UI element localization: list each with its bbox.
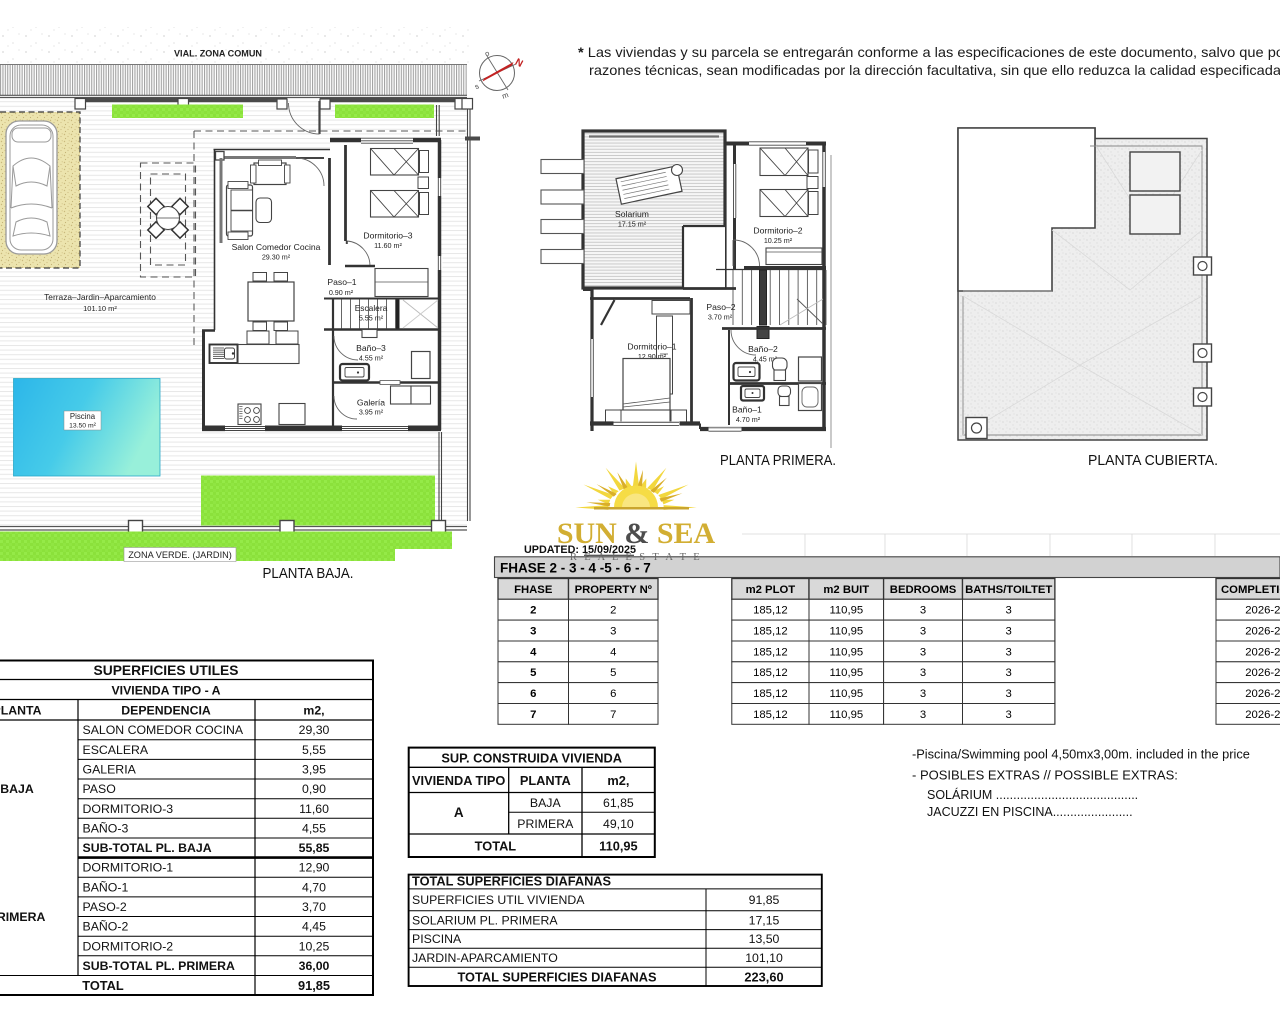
svg-text:BAJA: BAJA xyxy=(530,796,562,810)
svg-text:PASO: PASO xyxy=(83,782,116,796)
svg-text:61,85: 61,85 xyxy=(603,796,634,810)
svg-text:4,70: 4,70 xyxy=(302,880,326,894)
svg-text:SUPERFICIES UTILES: SUPERFICIES UTILES xyxy=(94,663,239,678)
svg-text:FHASE: FHASE xyxy=(514,584,553,596)
svg-text:2026-27: 2026-27 xyxy=(1245,626,1280,638)
svg-text:185,12: 185,12 xyxy=(753,667,788,679)
svg-text:3: 3 xyxy=(1006,646,1012,658)
svg-text:VIVIENDA TIPO: VIVIENDA TIPO xyxy=(412,773,505,788)
svg-text:49,10: 49,10 xyxy=(603,817,634,831)
svg-text:SUB-TOTAL PL. BAJA: SUB-TOTAL PL. BAJA xyxy=(83,841,212,855)
svg-text:4.70 m²: 4.70 m² xyxy=(736,415,761,424)
svg-text:m2 PLOT: m2 PLOT xyxy=(746,584,796,596)
svg-text:Piscina: Piscina xyxy=(70,412,96,421)
svg-text:COMPLETION: COMPLETION xyxy=(1221,584,1280,596)
svg-text:12,90: 12,90 xyxy=(299,861,330,875)
svg-text:PLANTA: PLANTA xyxy=(520,773,571,788)
svg-text:A: A xyxy=(454,805,464,820)
svg-text:3: 3 xyxy=(530,626,536,638)
svg-text:185,12: 185,12 xyxy=(753,688,788,700)
svg-text:PRIMERA: PRIMERA xyxy=(0,910,45,924)
svg-text:Dormitorio–2: Dormitorio–2 xyxy=(753,226,802,236)
svg-text:5.55 m²: 5.55 m² xyxy=(359,314,384,323)
svg-text:Dormitorio–1: Dormitorio–1 xyxy=(627,342,676,352)
svg-text:3: 3 xyxy=(920,646,926,658)
svg-text:3: 3 xyxy=(1006,605,1012,617)
svg-text:2: 2 xyxy=(530,605,536,617)
svg-text:- POSIBLES EXTRAS // POSSIBLE: - POSIBLES EXTRAS // POSSIBLE EXTRAS: xyxy=(912,768,1178,783)
svg-text:13,50: 13,50 xyxy=(749,932,780,946)
svg-text:4: 4 xyxy=(530,646,537,658)
svg-text:SALON COMEDOR COCINA: SALON COMEDOR COCINA xyxy=(83,723,244,737)
svg-text:11.60 m²: 11.60 m² xyxy=(374,241,402,250)
svg-text:3: 3 xyxy=(1006,626,1012,638)
svg-text:3,70: 3,70 xyxy=(302,900,326,914)
svg-text:Salon Comedor Cocina: Salon Comedor Cocina xyxy=(232,242,321,252)
svg-text:BAÑO-2: BAÑO-2 xyxy=(83,920,129,934)
svg-text:3: 3 xyxy=(1006,709,1012,721)
svg-text:101.10 m²: 101.10 m² xyxy=(83,304,117,313)
svg-text:m2,: m2, xyxy=(607,773,629,788)
svg-text:SOLARIUM PL. PRIMERA: SOLARIUM PL. PRIMERA xyxy=(412,913,558,927)
svg-text:TOTAL SUPERFICIES DIAFANAS: TOTAL SUPERFICIES DIAFANAS xyxy=(457,970,657,985)
svg-text:13.50 m²: 13.50 m² xyxy=(69,423,97,430)
svg-text:3.70 m²: 3.70 m² xyxy=(708,313,733,322)
svg-text:Solarium: Solarium xyxy=(615,209,649,219)
svg-text:Baño–3: Baño–3 xyxy=(356,343,386,353)
svg-text:PRIMERA: PRIMERA xyxy=(517,817,574,831)
svg-text:7: 7 xyxy=(610,709,616,721)
svg-text:DEPENDENCIA: DEPENDENCIA xyxy=(121,704,211,718)
svg-text:PLANTA BAJA.: PLANTA BAJA. xyxy=(263,566,354,582)
svg-text:4.55 m²: 4.55 m² xyxy=(359,354,384,363)
svg-text:2026-27: 2026-27 xyxy=(1245,605,1280,617)
svg-text:BEDROOMS: BEDROOMS xyxy=(890,584,957,596)
svg-text:Paso–1: Paso–1 xyxy=(327,277,356,287)
svg-text:91,85: 91,85 xyxy=(749,893,780,907)
svg-text:5,55: 5,55 xyxy=(302,743,326,757)
svg-text:razones técnicas, sean modific: razones técnicas, sean modificadas por l… xyxy=(589,62,1280,78)
svg-text:Escalera: Escalera xyxy=(355,303,388,313)
svg-text:91,85: 91,85 xyxy=(298,978,330,993)
svg-text:0.90 m²: 0.90 m² xyxy=(329,288,354,297)
svg-text:2026-27: 2026-27 xyxy=(1245,667,1280,679)
svg-text:29,30: 29,30 xyxy=(299,723,330,737)
svg-text:29.30 m²: 29.30 m² xyxy=(262,253,291,262)
svg-text:2026-27: 2026-27 xyxy=(1245,709,1280,721)
svg-text:TOTAL SUPERFICIES DIAFANAS: TOTAL SUPERFICIES DIAFANAS xyxy=(412,873,612,888)
svg-text:5: 5 xyxy=(610,667,616,679)
svg-text:TOTAL: TOTAL xyxy=(475,839,517,854)
svg-text:DORMITORIO-3: DORMITORIO-3 xyxy=(83,802,174,816)
svg-text:Paso–2: Paso–2 xyxy=(706,302,735,312)
svg-text:3: 3 xyxy=(1006,667,1012,679)
svg-text:6: 6 xyxy=(530,688,536,700)
svg-text:m2,: m2, xyxy=(303,704,324,718)
svg-text:10.25 m²: 10.25 m² xyxy=(764,236,793,245)
svg-text:2026-27: 2026-27 xyxy=(1245,688,1280,700)
svg-text:101,10: 101,10 xyxy=(745,951,783,965)
svg-text:PASO-2: PASO-2 xyxy=(83,900,127,914)
svg-text:PLANTA: PLANTA xyxy=(0,704,42,718)
svg-text:7: 7 xyxy=(530,709,536,721)
svg-text:PLANTA PRIMERA.: PLANTA PRIMERA. xyxy=(720,453,836,469)
svg-text:SUPERFICIES UTIL VIVIENDA: SUPERFICIES UTIL VIVIENDA xyxy=(412,893,585,907)
svg-text:3: 3 xyxy=(920,667,926,679)
svg-text:110,95: 110,95 xyxy=(829,709,863,721)
svg-text:GALERIA: GALERIA xyxy=(83,763,137,777)
svg-text:110,95: 110,95 xyxy=(599,839,637,854)
svg-text:DORMITORIO-2: DORMITORIO-2 xyxy=(83,939,174,953)
svg-text:SUN & SEA: SUN & SEA xyxy=(557,517,716,550)
svg-text:-Piscina/Swimming pool 4,50mx3: -Piscina/Swimming pool 4,50mx3,00m. incl… xyxy=(912,747,1250,762)
svg-text:DORMITORIO-1: DORMITORIO-1 xyxy=(83,861,174,875)
svg-text:BAÑO-3: BAÑO-3 xyxy=(83,821,129,835)
svg-text:ESCALERA: ESCALERA xyxy=(83,743,149,757)
svg-text:SOLÁRIUM .....................: SOLÁRIUM ...............................… xyxy=(927,787,1138,802)
svg-text:185,12: 185,12 xyxy=(753,626,788,638)
svg-text:BATHS/TOILTET: BATHS/TOILTET xyxy=(965,584,1052,596)
svg-text:SUP. CONSTRUIDA VIVIENDA: SUP. CONSTRUIDA VIVIENDA xyxy=(441,751,622,766)
svg-text:185,12: 185,12 xyxy=(753,646,788,658)
svg-text:PISCINA: PISCINA xyxy=(412,932,462,946)
svg-text:0,90: 0,90 xyxy=(302,782,326,796)
svg-text:17,15: 17,15 xyxy=(749,913,780,927)
svg-text:Dormitorio–3: Dormitorio–3 xyxy=(363,231,412,241)
svg-text:3: 3 xyxy=(1006,688,1012,700)
svg-text:VIVIENDA TIPO - A: VIVIENDA TIPO - A xyxy=(111,684,220,698)
svg-text:PROPERTY Nº: PROPERTY Nº xyxy=(575,584,652,596)
svg-text:3,95: 3,95 xyxy=(302,763,326,777)
svg-text:11,60: 11,60 xyxy=(299,802,329,816)
svg-text:5: 5 xyxy=(530,667,536,679)
svg-text:110,95: 110,95 xyxy=(829,626,863,638)
svg-text:JARDIN-APARCAMIENTO: JARDIN-APARCAMIENTO xyxy=(412,951,558,965)
svg-text:223,60: 223,60 xyxy=(744,970,783,985)
svg-text:3: 3 xyxy=(920,626,926,638)
svg-text:10,25: 10,25 xyxy=(299,939,330,953)
svg-text:6: 6 xyxy=(610,688,616,700)
svg-text:36,00: 36,00 xyxy=(299,959,330,973)
svg-text:185,12: 185,12 xyxy=(753,709,788,721)
svg-text:185,12: 185,12 xyxy=(753,605,788,617)
svg-text:2: 2 xyxy=(610,605,616,617)
svg-text:Terraza–Jardin–Aparcamiento: Terraza–Jardin–Aparcamiento xyxy=(44,292,156,302)
svg-text:BAÑO-1: BAÑO-1 xyxy=(83,880,129,894)
svg-text:55,85: 55,85 xyxy=(299,841,330,855)
svg-text:BAJA: BAJA xyxy=(0,782,34,796)
svg-text:Galería: Galería xyxy=(357,398,385,408)
svg-text:Baño–2: Baño–2 xyxy=(748,344,778,354)
svg-text:3.95 m²: 3.95 m² xyxy=(359,408,384,417)
svg-text:TOTAL: TOTAL xyxy=(82,978,124,993)
svg-text:SUB-TOTAL PL. PRIMERA: SUB-TOTAL PL. PRIMERA xyxy=(83,959,235,973)
svg-text:3: 3 xyxy=(920,688,926,700)
svg-text:4,45: 4,45 xyxy=(302,920,326,934)
svg-text:17.15 m²: 17.15 m² xyxy=(618,220,647,229)
svg-text:3: 3 xyxy=(920,605,926,617)
svg-text:JACUZZI EN PISCINA............: JACUZZI EN PISCINA......................… xyxy=(927,805,1133,819)
svg-text:R E A L E S T A T E: R E A L E S T A T E xyxy=(570,552,702,563)
svg-text:3: 3 xyxy=(920,709,926,721)
svg-text:* Las viviendas y su parcela s: * Las viviendas y su parcela se entregar… xyxy=(578,44,1280,60)
svg-text:110,95: 110,95 xyxy=(829,667,863,679)
svg-text:Baño–1: Baño–1 xyxy=(732,405,762,415)
svg-text:ZONA VERDE. (JARDIN): ZONA VERDE. (JARDIN) xyxy=(128,550,232,560)
svg-text:110,95: 110,95 xyxy=(829,605,863,617)
svg-text:2026-27: 2026-27 xyxy=(1245,646,1280,658)
svg-text:4,55: 4,55 xyxy=(302,821,326,835)
svg-text:VIAL. ZONA COMUN: VIAL. ZONA COMUN xyxy=(174,49,262,60)
svg-text:110,95: 110,95 xyxy=(829,688,863,700)
svg-text:3: 3 xyxy=(610,626,616,638)
svg-text:4: 4 xyxy=(610,646,616,658)
svg-text:110,95: 110,95 xyxy=(829,646,863,658)
svg-text:PLANTA CUBIERTA.: PLANTA CUBIERTA. xyxy=(1088,453,1218,469)
svg-text:m2 BUIT: m2 BUIT xyxy=(823,584,869,596)
